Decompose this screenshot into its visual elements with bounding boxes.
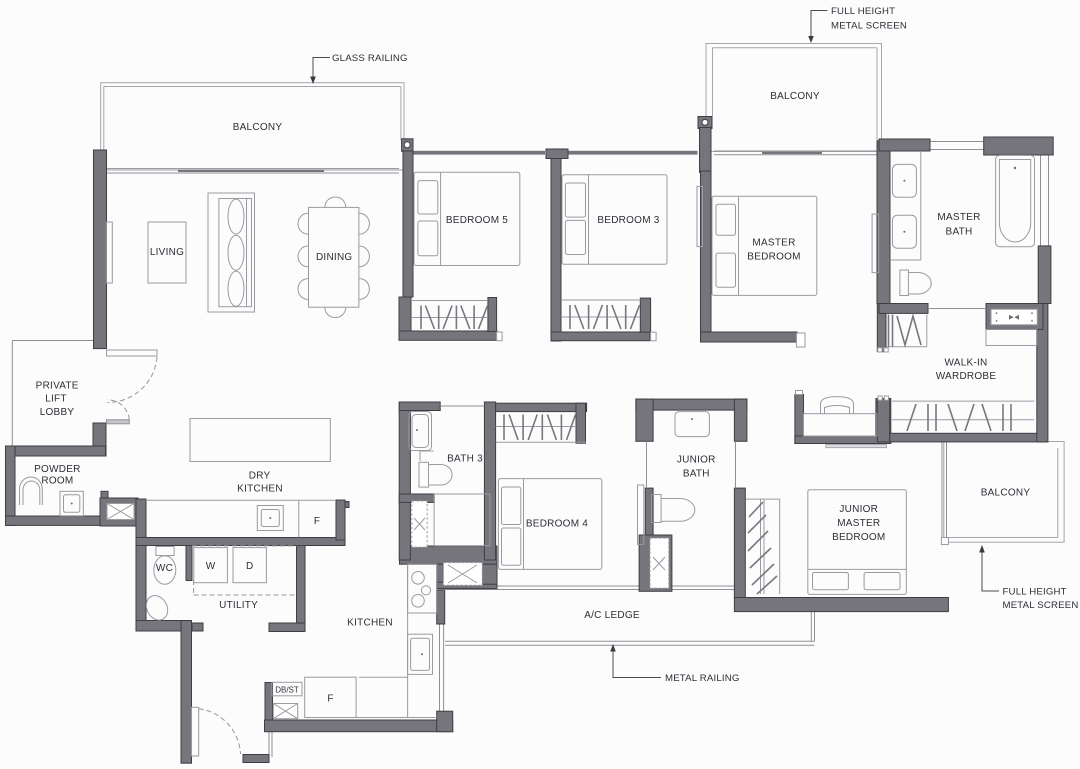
svg-text:JUNIOR: JUNIOR [677, 454, 716, 465]
svg-text:BATH: BATH [683, 469, 710, 480]
svg-text:POWDER: POWDER [34, 464, 81, 475]
svg-text:LIFT: LIFT [45, 394, 67, 405]
svg-text:DRY: DRY [249, 471, 271, 482]
svg-text:LIVING: LIVING [150, 247, 184, 258]
svg-text:BALCONY: BALCONY [233, 122, 283, 133]
svg-text:WC: WC [156, 563, 173, 574]
svg-text:BATH: BATH [946, 227, 973, 238]
svg-text:BEDROOM 4: BEDROOM 4 [526, 519, 588, 530]
svg-text:METAL SCREEN: METAL SCREEN [831, 21, 907, 32]
svg-text:KITCHEN: KITCHEN [237, 484, 283, 495]
svg-text:BEDROOM 3: BEDROOM 3 [597, 215, 659, 226]
svg-text:DB/ST: DB/ST [275, 685, 299, 694]
svg-text:JUNIOR: JUNIOR [839, 504, 878, 515]
svg-text:METAL RAILING: METAL RAILING [665, 673, 740, 684]
svg-text:BEDROOM: BEDROOM [832, 532, 885, 543]
svg-text:F: F [327, 694, 333, 705]
svg-text:PRIVATE: PRIVATE [36, 380, 79, 391]
svg-text:W: W [206, 561, 216, 572]
svg-text:D: D [246, 561, 253, 572]
svg-text:ROOM: ROOM [41, 476, 73, 487]
svg-text:BALCONY: BALCONY [981, 488, 1031, 499]
svg-text:MASTER: MASTER [837, 518, 880, 529]
svg-text:F: F [314, 516, 320, 527]
svg-text:FULL HEIGHT: FULL HEIGHT [831, 6, 895, 17]
svg-text:WALK-IN: WALK-IN [944, 358, 987, 369]
svg-text:A/C LEDGE: A/C LEDGE [584, 610, 640, 621]
svg-text:DINING: DINING [316, 252, 353, 263]
svg-text:WARDROBE: WARDROBE [936, 371, 997, 382]
svg-text:BALCONY: BALCONY [770, 91, 820, 102]
svg-text:FULL HEIGHT: FULL HEIGHT [1003, 587, 1067, 598]
svg-text:GLASS RAILING: GLASS RAILING [332, 53, 408, 64]
svg-text:BATH 3: BATH 3 [447, 454, 483, 465]
svg-text:LOBBY: LOBBY [40, 407, 75, 418]
svg-text:UTILITY: UTILITY [219, 600, 258, 611]
svg-text:MASTER: MASTER [937, 212, 980, 223]
svg-text:METAL SCREEN: METAL SCREEN [1003, 600, 1079, 611]
svg-text:BEDROOM 5: BEDROOM 5 [446, 215, 508, 226]
svg-text:MASTER: MASTER [752, 238, 795, 249]
svg-text:KITCHEN: KITCHEN [347, 618, 393, 629]
svg-text:BEDROOM: BEDROOM [747, 252, 800, 263]
